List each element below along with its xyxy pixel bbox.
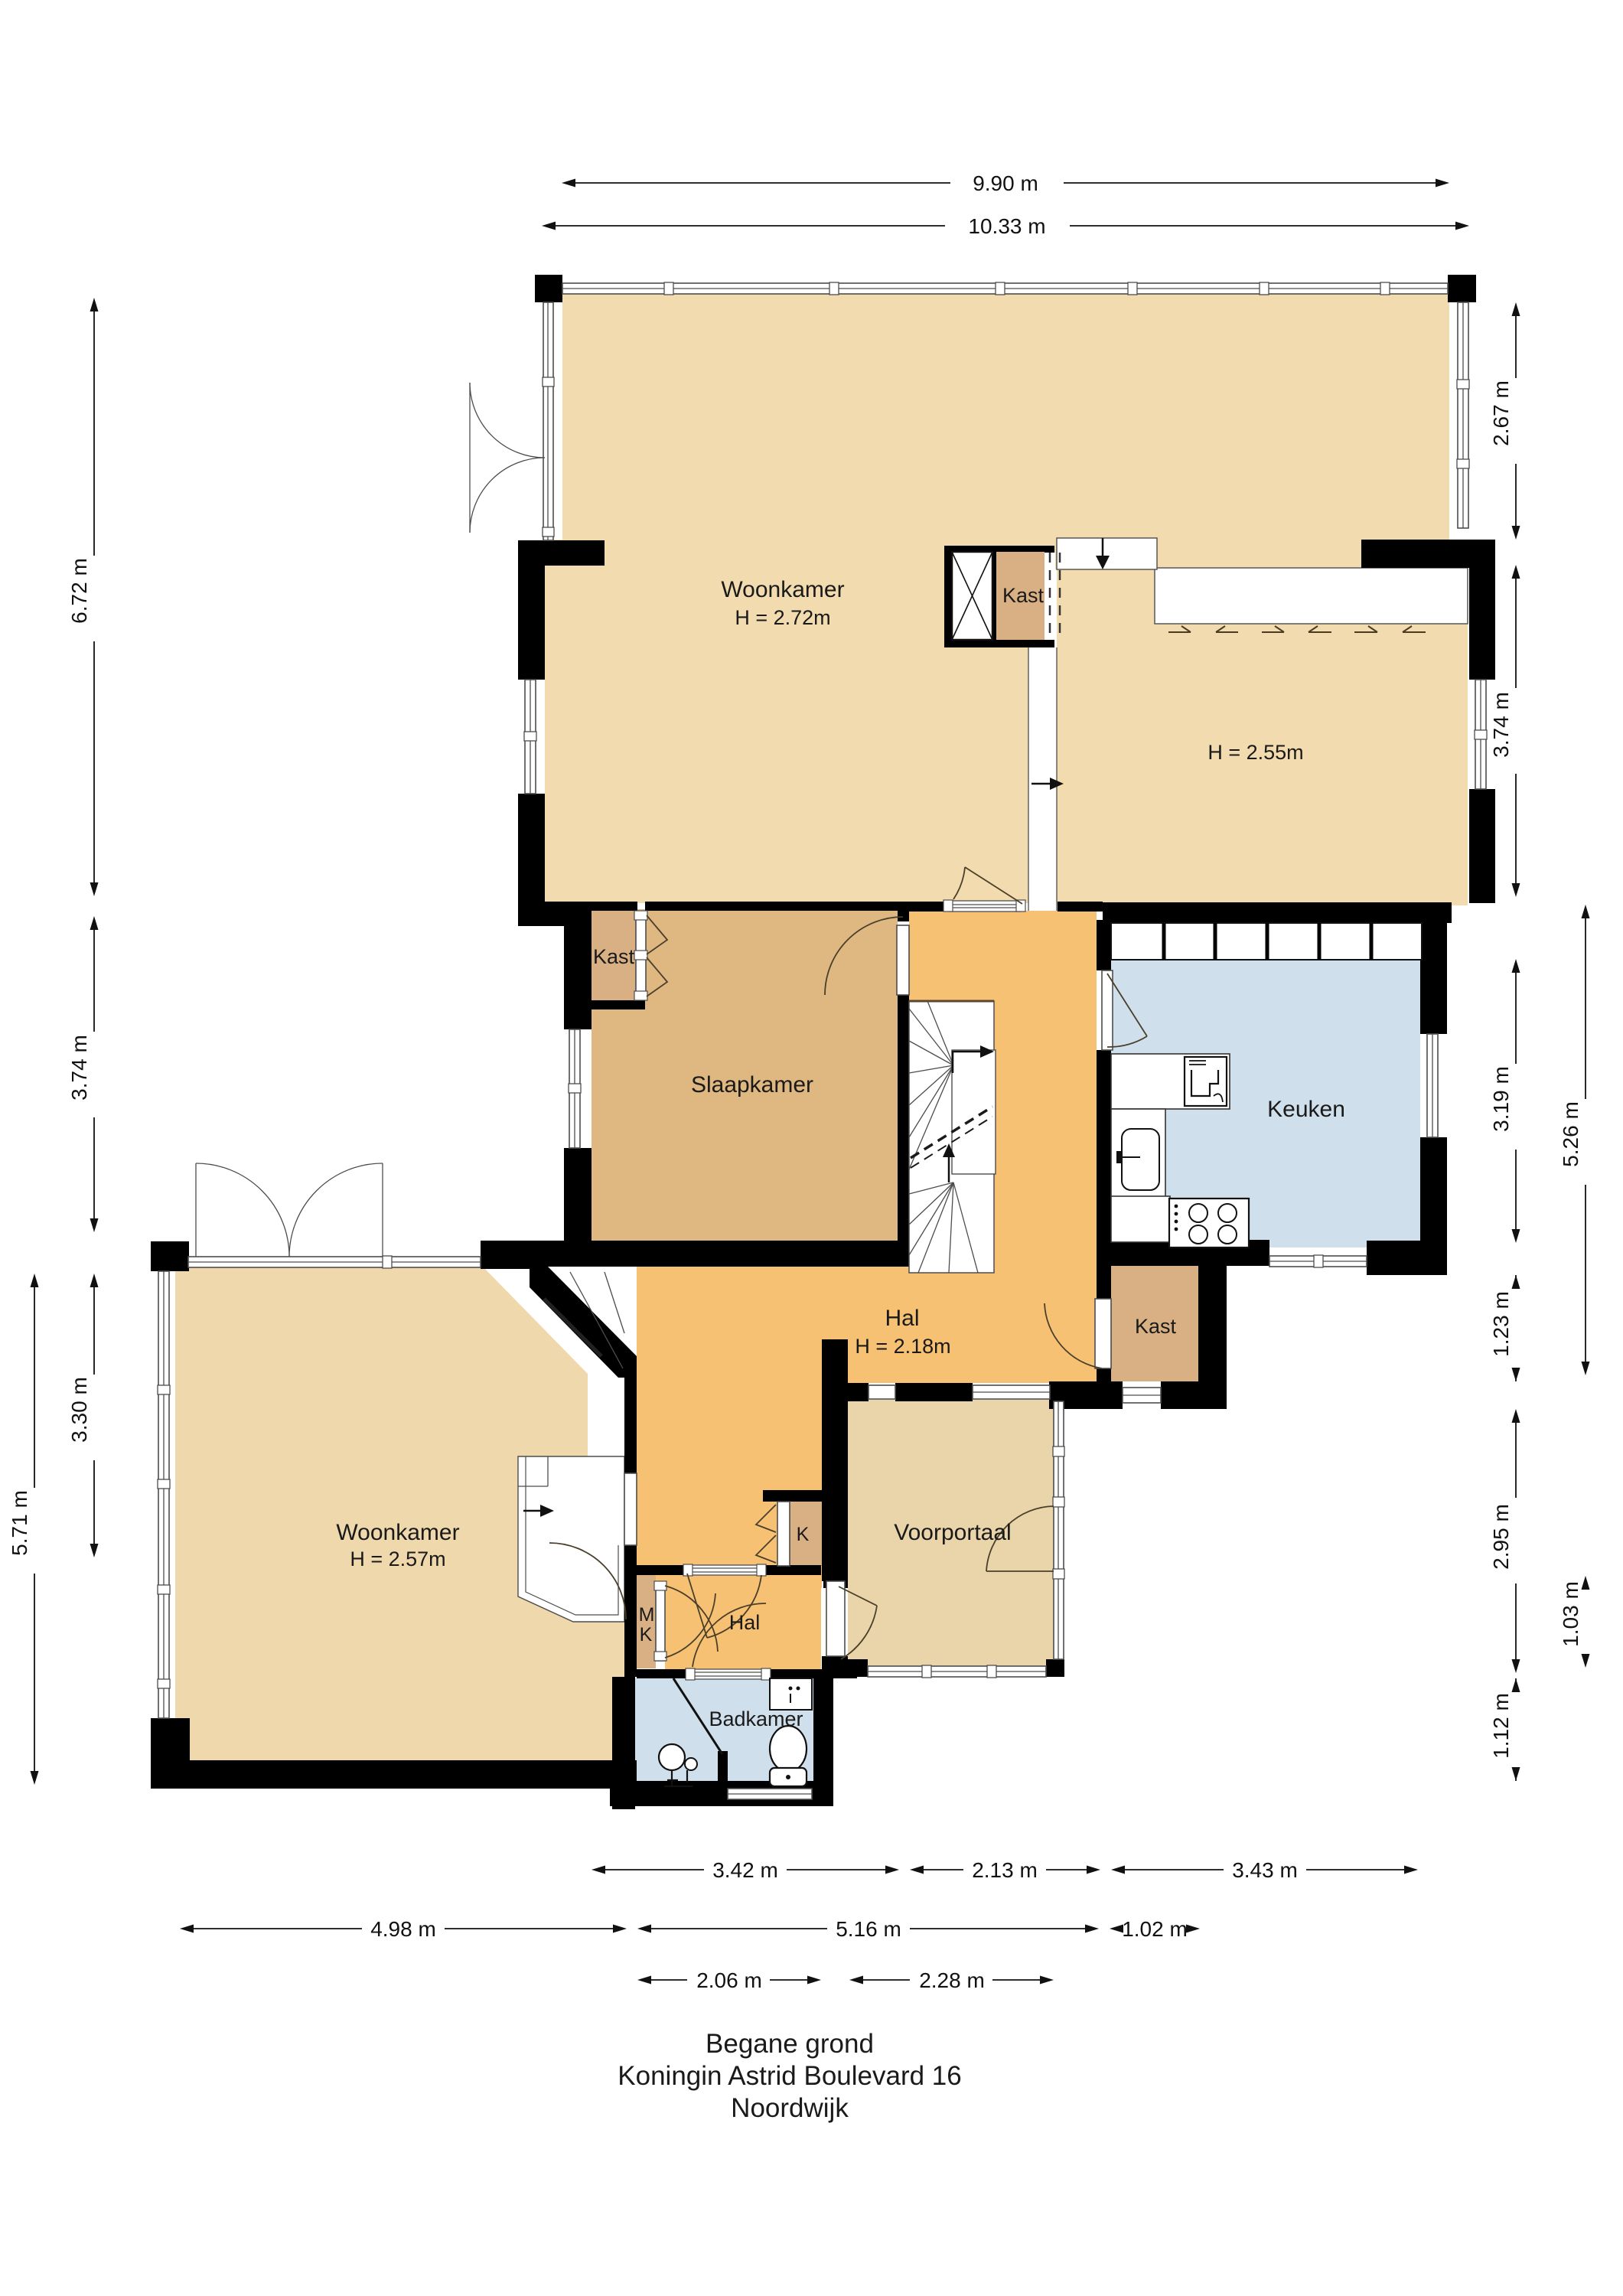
svg-text:2.06 m: 2.06 m [696, 1968, 762, 1992]
svg-text:3.30 m: 3.30 m [67, 1377, 91, 1443]
svg-text:H = 2.18m: H = 2.18m [855, 1335, 950, 1358]
svg-text:3.74 m: 3.74 m [1489, 692, 1513, 758]
svg-text:Kast: Kast [593, 945, 635, 968]
svg-text:1.23 m: 1.23 m [1489, 1291, 1513, 1357]
svg-text:K: K [640, 1624, 653, 1645]
svg-text:Badkamer: Badkamer [709, 1707, 803, 1730]
svg-text:Woonkamer: Woonkamer [336, 1520, 459, 1545]
svg-text:1.02 m: 1.02 m [1122, 1917, 1188, 1941]
svg-text:2.28 m: 2.28 m [919, 1968, 985, 1992]
svg-text:4.98 m: 4.98 m [370, 1917, 436, 1941]
svg-text:5.71 m: 5.71 m [8, 1490, 31, 1556]
svg-text:M: M [639, 1604, 655, 1626]
svg-text:3.19 m: 3.19 m [1489, 1066, 1513, 1132]
svg-text:Begane grond: Begane grond [706, 2029, 874, 2059]
svg-text:Keuken: Keuken [1267, 1097, 1345, 1122]
svg-text:Kast: Kast [1002, 584, 1045, 607]
svg-text:Woonkamer: Woonkamer [721, 577, 844, 602]
svg-text:2.13 m: 2.13 m [972, 1858, 1038, 1882]
svg-text:2.67 m: 2.67 m [1489, 380, 1513, 446]
svg-text:6.72 m: 6.72 m [67, 558, 91, 624]
svg-text:Kast: Kast [1135, 1315, 1177, 1338]
svg-text:5.26 m: 5.26 m [1559, 1101, 1582, 1167]
svg-text:3.42 m: 3.42 m [712, 1858, 778, 1882]
svg-text:Koningin Astrid Boulevard 16: Koningin Astrid Boulevard 16 [618, 2061, 961, 2091]
svg-text:H = 2.55m: H = 2.55m [1207, 741, 1303, 764]
svg-text:1.03 m: 1.03 m [1559, 1581, 1582, 1647]
svg-text:Hal: Hal [885, 1306, 919, 1331]
svg-text:K: K [797, 1524, 810, 1545]
svg-text:Noordwijk: Noordwijk [731, 2093, 849, 2123]
svg-text:5.16 m: 5.16 m [836, 1917, 901, 1941]
svg-text:3.74 m: 3.74 m [67, 1035, 91, 1101]
svg-text:H = 2.72m: H = 2.72m [735, 606, 830, 629]
svg-text:Slaapkamer: Slaapkamer [691, 1072, 813, 1097]
svg-text:10.33 m: 10.33 m [968, 214, 1045, 238]
svg-text:Voorportaal: Voorportaal [894, 1520, 1011, 1545]
svg-text:1.12 m: 1.12 m [1489, 1693, 1513, 1759]
svg-text:9.90 m: 9.90 m [973, 171, 1038, 195]
svg-text:Hal: Hal [729, 1611, 761, 1634]
svg-text:H = 2.57m: H = 2.57m [350, 1548, 445, 1570]
svg-text:3.43 m: 3.43 m [1232, 1858, 1298, 1882]
svg-text:2.95 m: 2.95 m [1489, 1504, 1513, 1570]
